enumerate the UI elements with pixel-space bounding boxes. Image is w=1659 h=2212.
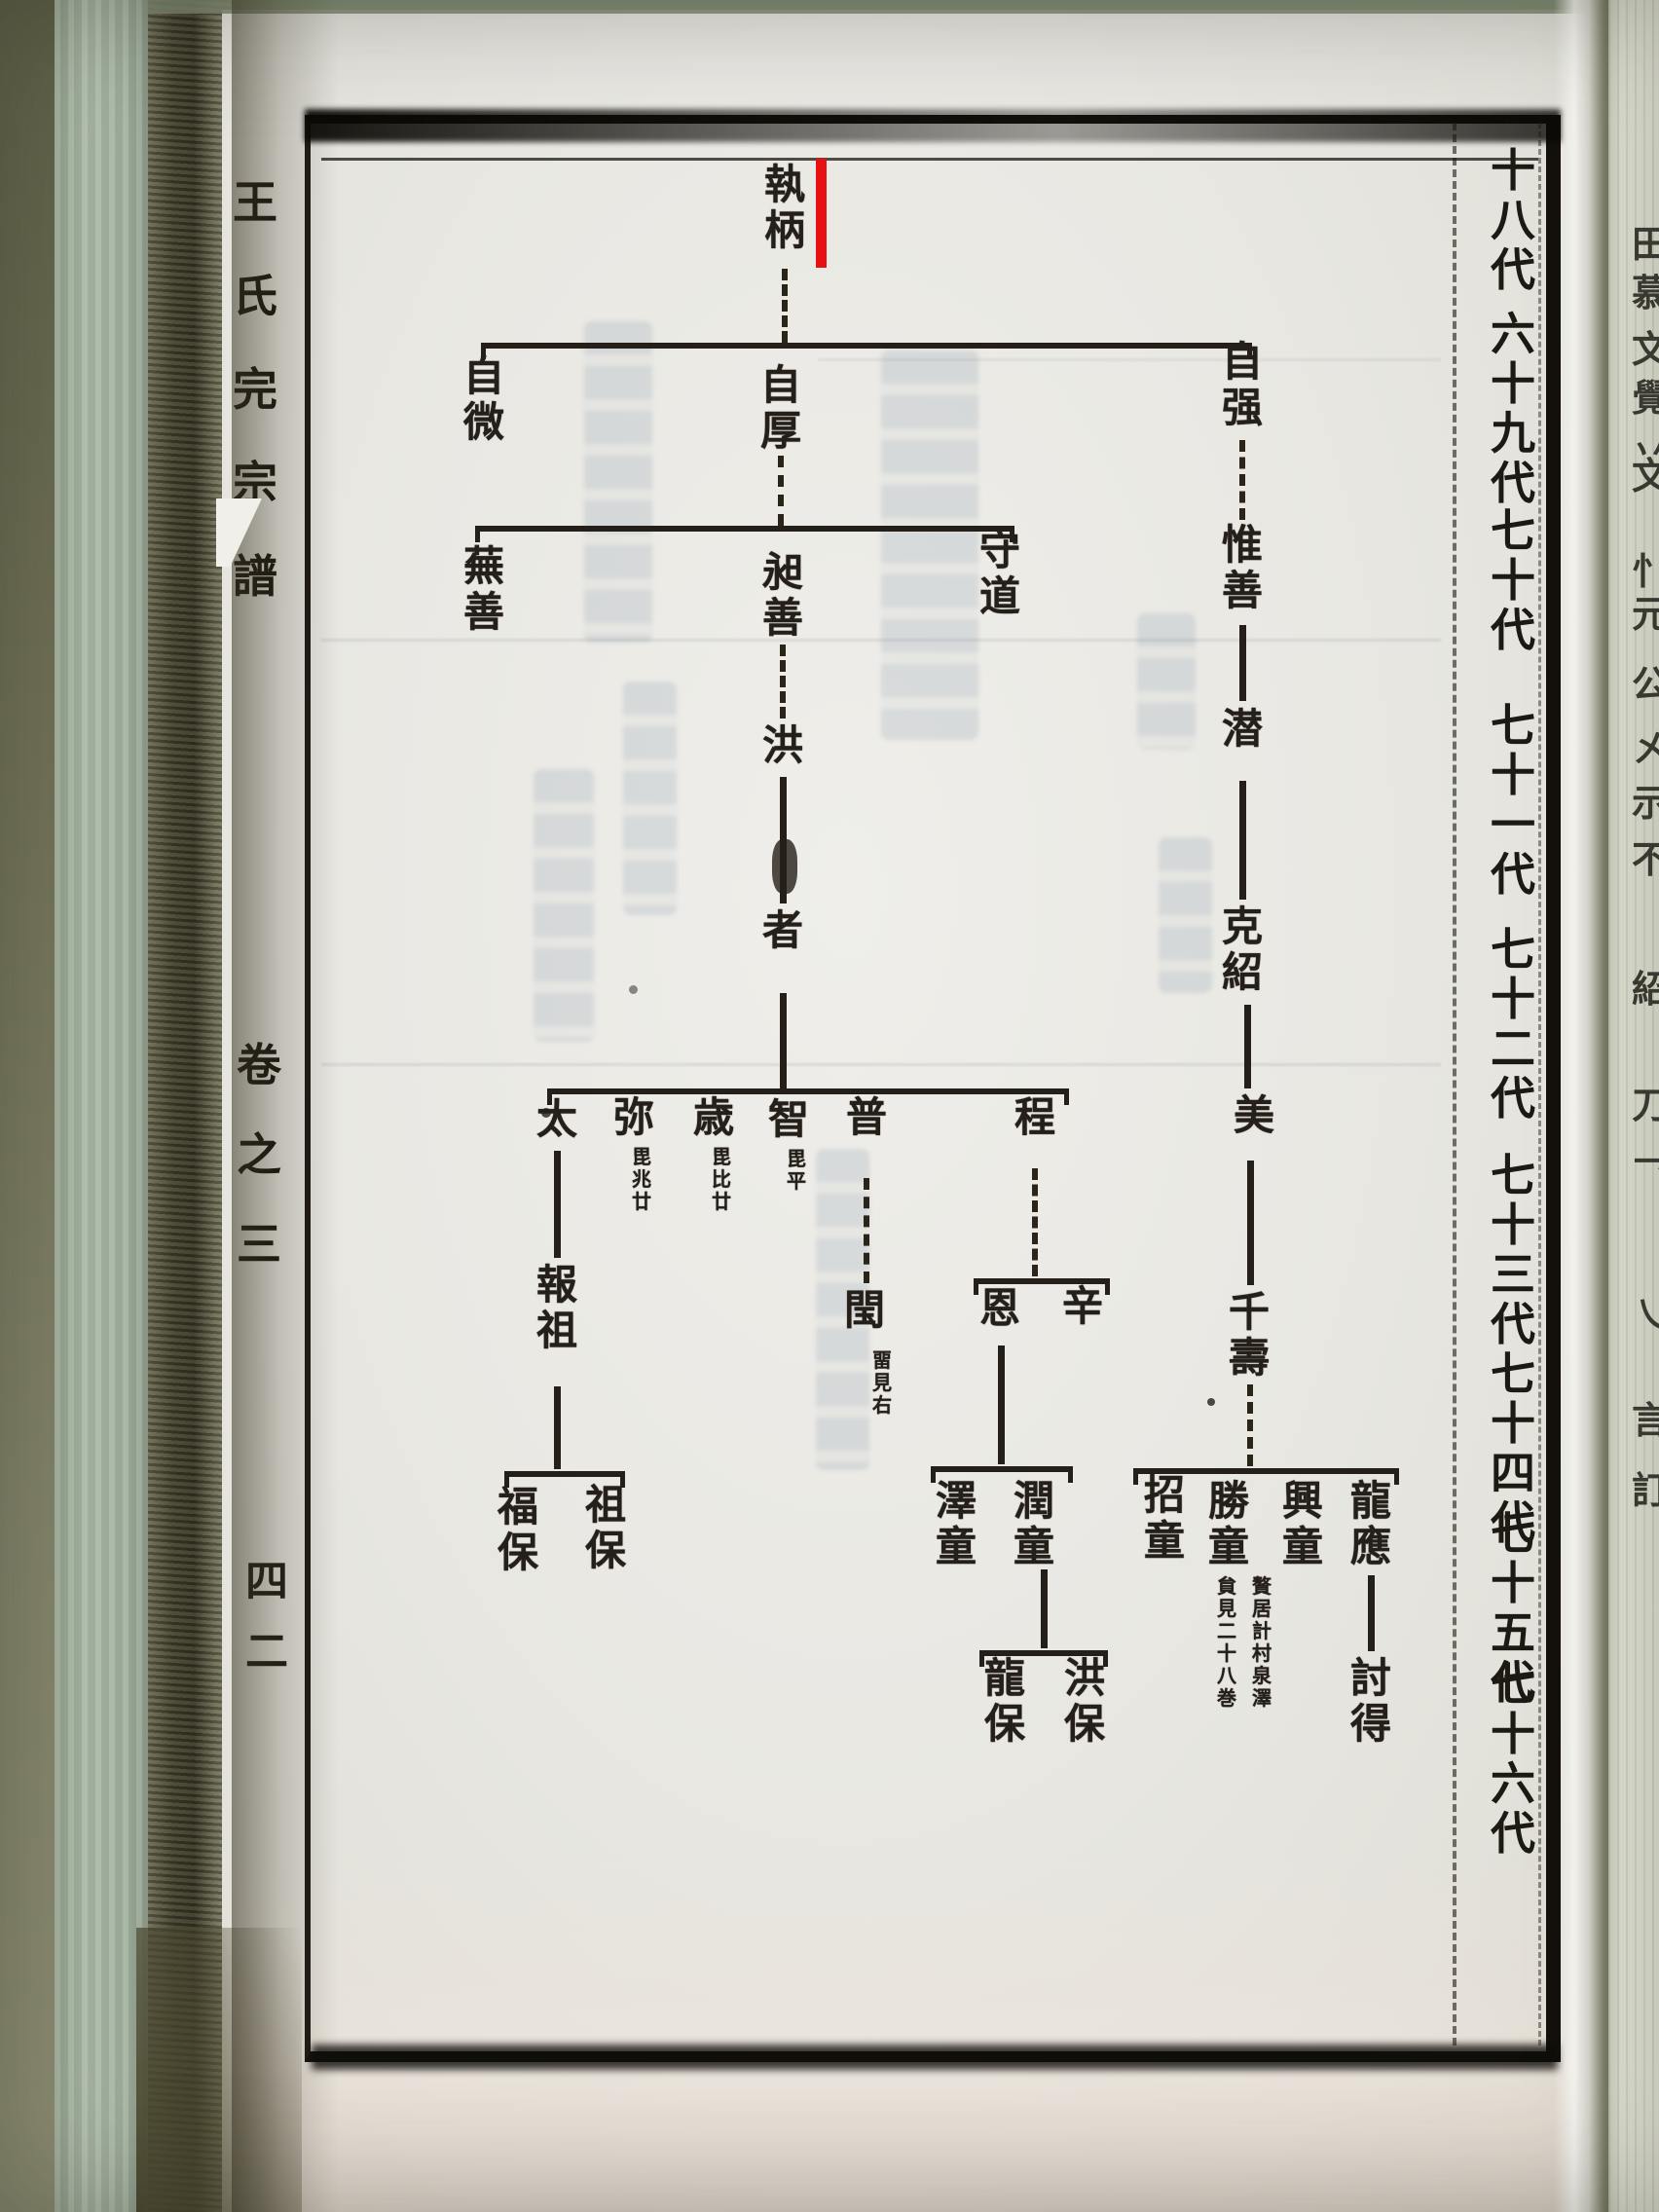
generation-label-partial: 十八代 (1476, 146, 1550, 295)
tree-node-zhibing: 執柄 (759, 162, 810, 253)
sibling-bracket (974, 1278, 1110, 1284)
sibling-bracket (1133, 1468, 1399, 1474)
tree-connector (1041, 1569, 1048, 1648)
tree-node-tai: 太 (532, 1096, 582, 1142)
tree-connector (1368, 1575, 1375, 1651)
tree-connector (780, 777, 787, 903)
sibling-bracket (979, 1650, 1108, 1656)
tree-node-shengtong-annotation-0: 贅居計村泉澤 (1250, 1575, 1273, 1710)
tree-node-en: 恩 (975, 1285, 1025, 1331)
tree-node-zihou: 自厚 (756, 362, 806, 454)
tree-node-zhi-annotation-0: 毘平 (785, 1148, 808, 1193)
tree-node-qianshou: 千壽 (1224, 1289, 1274, 1381)
tree-connector (864, 1178, 869, 1283)
tree-node-shengtong: 勝童贅居計村泉澤貟見二十八巻 (1203, 1478, 1254, 1569)
tree-node-mi-annotation-0: 毘兆廿 (630, 1146, 653, 1213)
generation-label: 七十代 (1476, 506, 1550, 655)
tree-node-baozu: 報祖 (532, 1262, 582, 1353)
generation-label: 六十九代 (1476, 310, 1550, 508)
tree-node-qian: 潜 (1217, 706, 1268, 752)
tree-node-zhaotong: 招童 (1139, 1472, 1190, 1564)
tree-node-mi: 弥毘兆廿 (608, 1094, 659, 1140)
tree-node-cheng: 程 (1010, 1094, 1060, 1140)
generation-label: 七十二代 (1476, 925, 1550, 1124)
genealogy-tree: 執柄自微自厚自强蕪善昶善守道惟善洪潜者克紹美程普智毘平歳毘比廿弥毘兆廿太報祖閠畱… (0, 0, 1659, 2212)
tree-connector (998, 1346, 1005, 1464)
sibling-bracket (931, 1466, 1073, 1472)
sibling-bracket (475, 526, 1014, 532)
tree-node-mei: 美 (1229, 1092, 1279, 1138)
tree-node-runtong: 潤童 (1009, 1478, 1059, 1569)
tree-node-sui-annotation-0: 毘比廿 (710, 1146, 733, 1213)
tree-connector (1239, 781, 1246, 900)
generation-label: 七十一代 (1476, 701, 1550, 900)
generation-label: 七十三代 (1476, 1151, 1550, 1349)
tree-node-taode: 討得 (1346, 1655, 1396, 1747)
tree-node-zhi: 智毘平 (763, 1096, 814, 1142)
tree-connector (1239, 625, 1246, 701)
tree-node-ziqiang: 自强 (1217, 339, 1268, 430)
tree-connector (778, 456, 784, 526)
tree-connector (554, 1386, 561, 1469)
tree-node-longying: 龍應 (1346, 1478, 1396, 1569)
generation-label: 七十六代 (1476, 1660, 1550, 1859)
tree-node-shoudao: 守道 (975, 528, 1025, 619)
tree-connector (780, 993, 787, 1088)
tree-node-ziwei: 自微 (459, 353, 509, 445)
tree-connector (780, 645, 786, 719)
tree-node-longbao: 龍保 (979, 1655, 1030, 1747)
tree-node-weishan: 惟善 (1217, 522, 1268, 613)
tree-node-zubao: 祖保 (580, 1482, 631, 1573)
tree-connector (1032, 1168, 1038, 1276)
tree-node-keshao: 克紹 (1217, 903, 1268, 995)
tree-node-pu: 普 (841, 1094, 892, 1140)
tree-node-sui: 歳毘比廿 (688, 1094, 739, 1140)
tree-connector (1247, 1384, 1253, 1466)
sibling-bracket (481, 343, 1252, 349)
tree-connector (782, 269, 788, 343)
sibling-bracket (547, 1088, 1069, 1094)
sibling-bracket (504, 1471, 625, 1477)
tree-node-changshan: 昶善 (757, 549, 808, 641)
tree-node-run: 閠畱見右 (839, 1287, 890, 1333)
tree-node-fubao: 福保 (493, 1484, 543, 1575)
tree-node-xingtong: 興童 (1277, 1478, 1328, 1569)
tree-node-xin: 辛 (1057, 1283, 1108, 1329)
tree-node-hongbao: 洪保 (1059, 1655, 1110, 1747)
tree-connector (1239, 440, 1245, 520)
tree-node-run-annotation-0: 畱見右 (870, 1349, 894, 1417)
tree-node-wushan: 蕪善 (459, 543, 509, 635)
tree-connector (1244, 1005, 1251, 1088)
tree-connector (554, 1151, 561, 1258)
tree-connector (1247, 1161, 1254, 1285)
tree-node-hong: 洪 (757, 722, 808, 768)
tree-node-zetong: 澤童 (931, 1478, 981, 1569)
red-annotation-mark (816, 159, 827, 268)
tree-node-zhe: 者 (757, 907, 808, 953)
tree-node-shengtong-annotation-1: 貟見二十八巻 (1215, 1575, 1238, 1710)
